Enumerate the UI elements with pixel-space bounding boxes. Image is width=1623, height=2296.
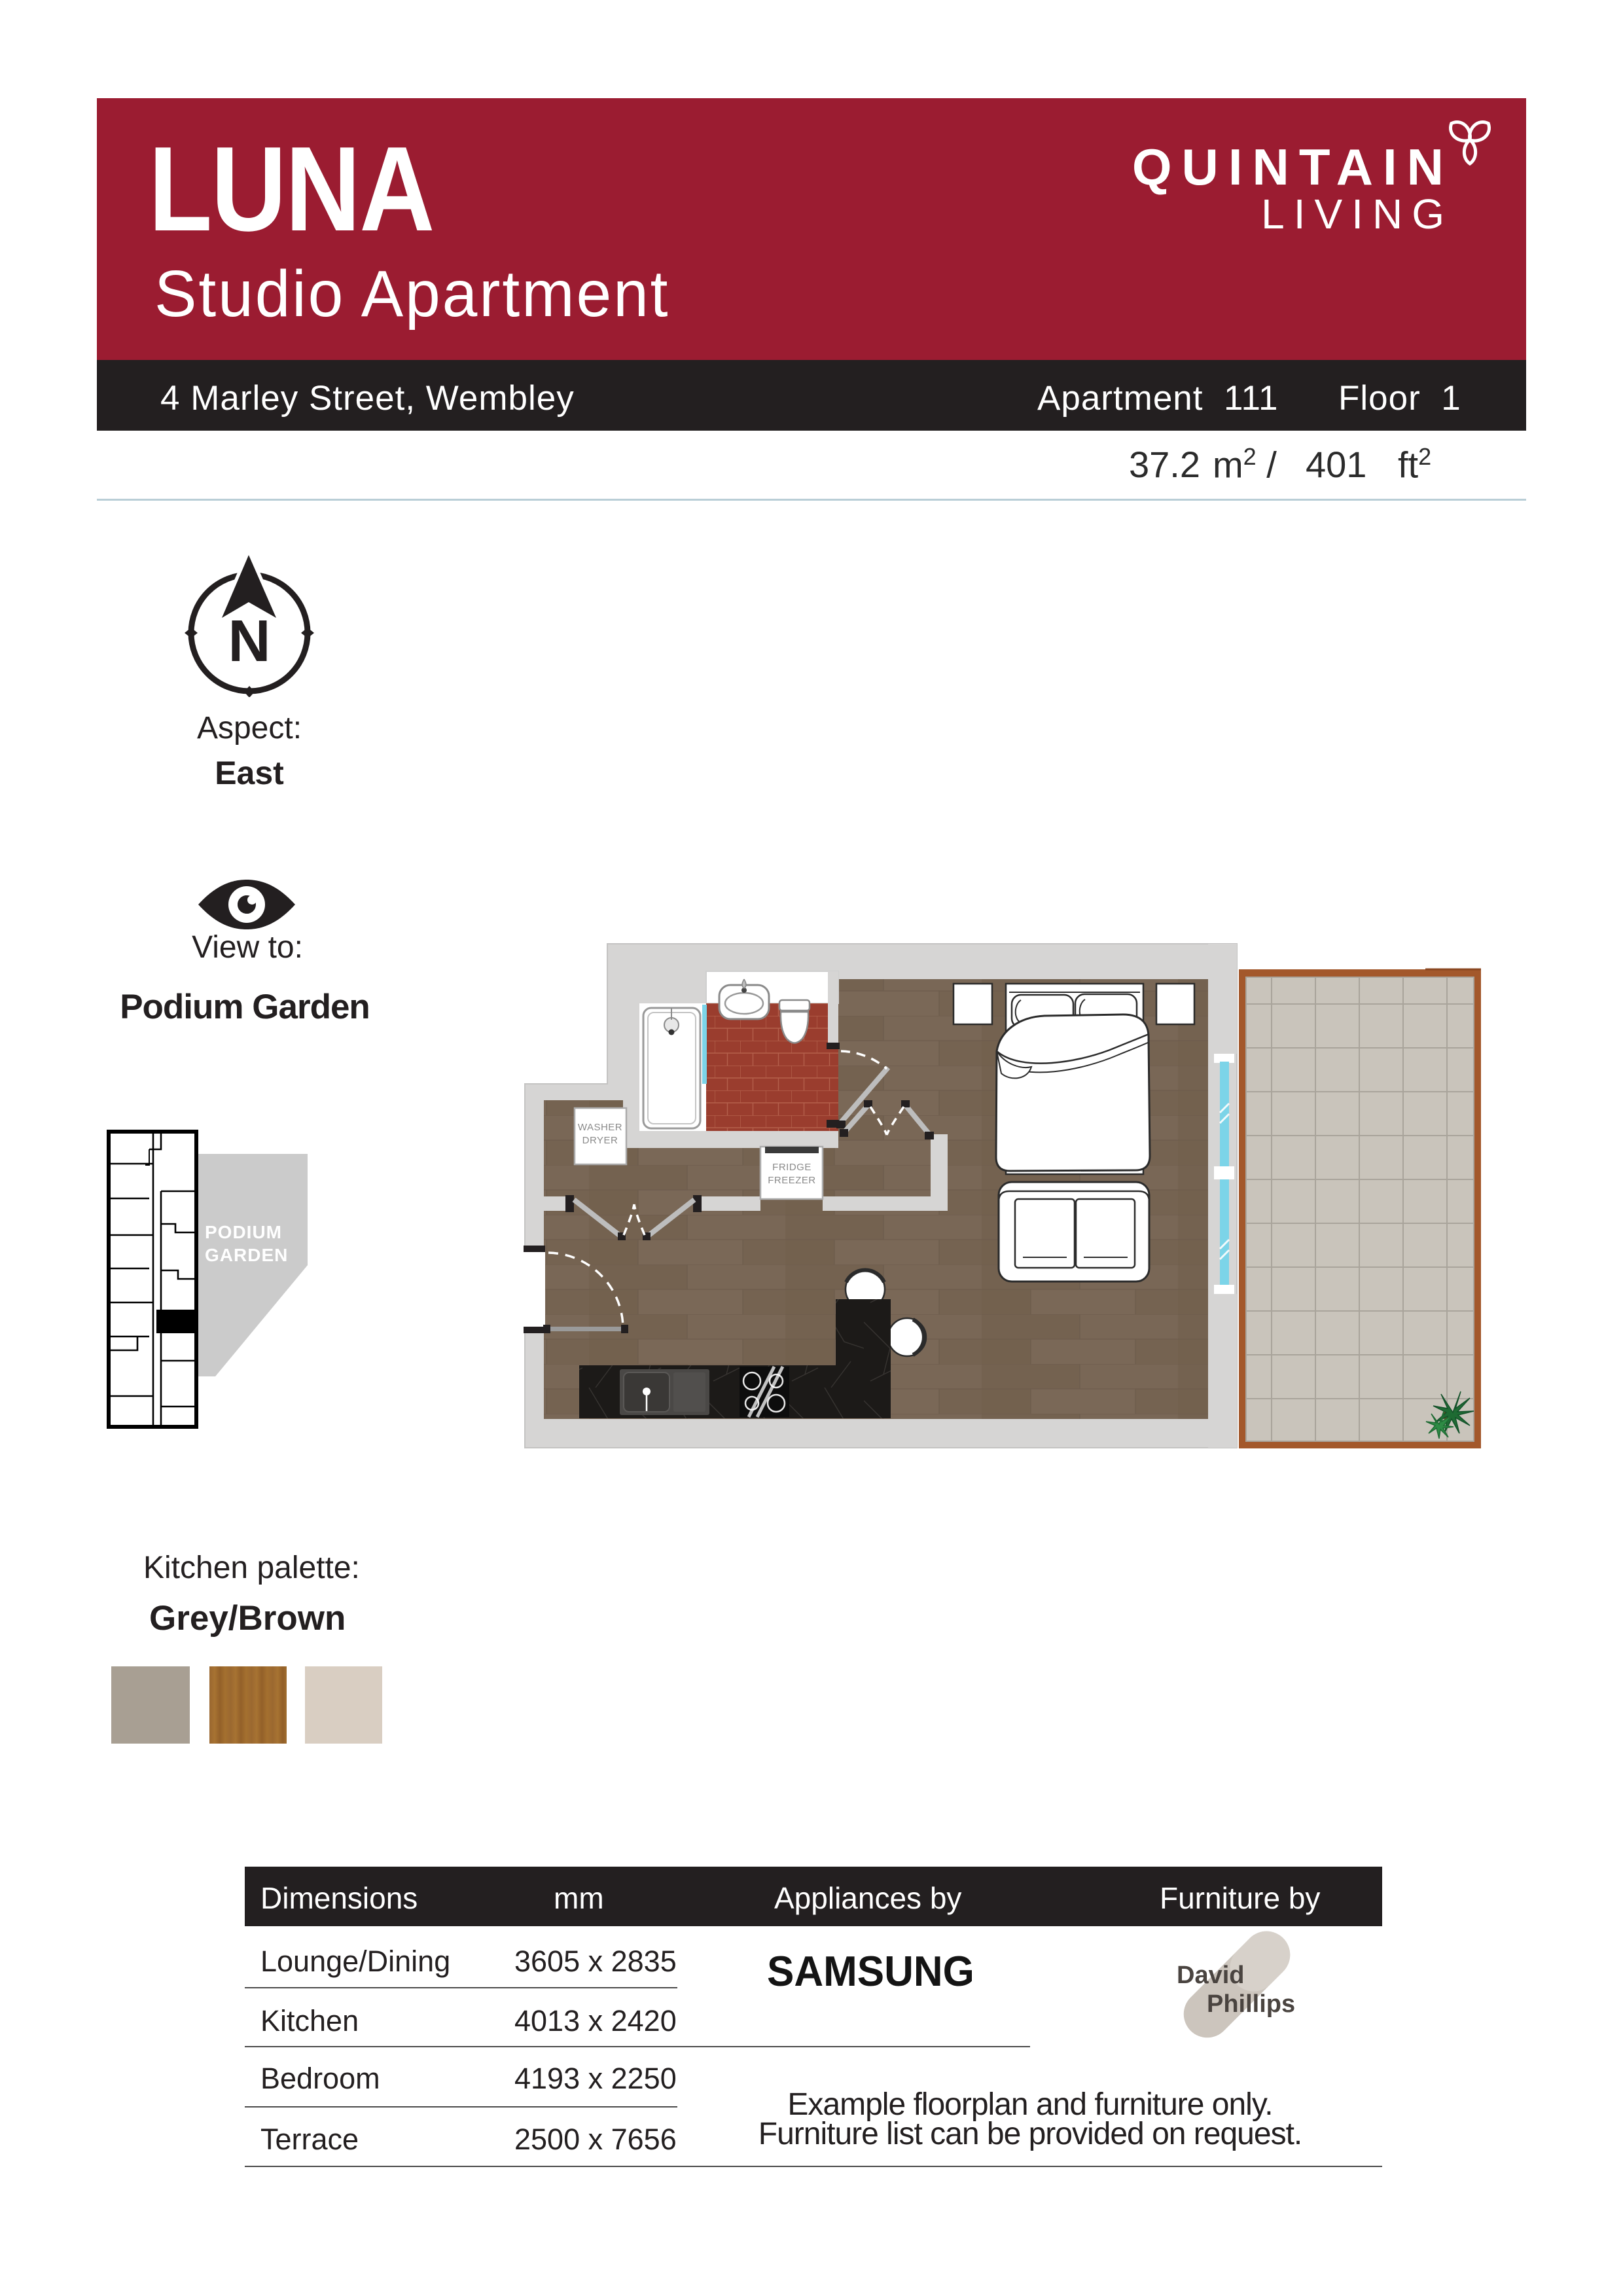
- svg-text:David: David: [1177, 1962, 1244, 1989]
- svg-text:DRYER: DRYER: [582, 1135, 618, 1146]
- svg-text:N: N: [228, 609, 271, 674]
- svg-text:FREEZER: FREEZER: [768, 1175, 816, 1186]
- svg-text:FRIDGE: FRIDGE: [772, 1162, 811, 1173]
- svg-text:WASHER: WASHER: [578, 1122, 622, 1133]
- svg-text:Phillips: Phillips: [1207, 1990, 1295, 2018]
